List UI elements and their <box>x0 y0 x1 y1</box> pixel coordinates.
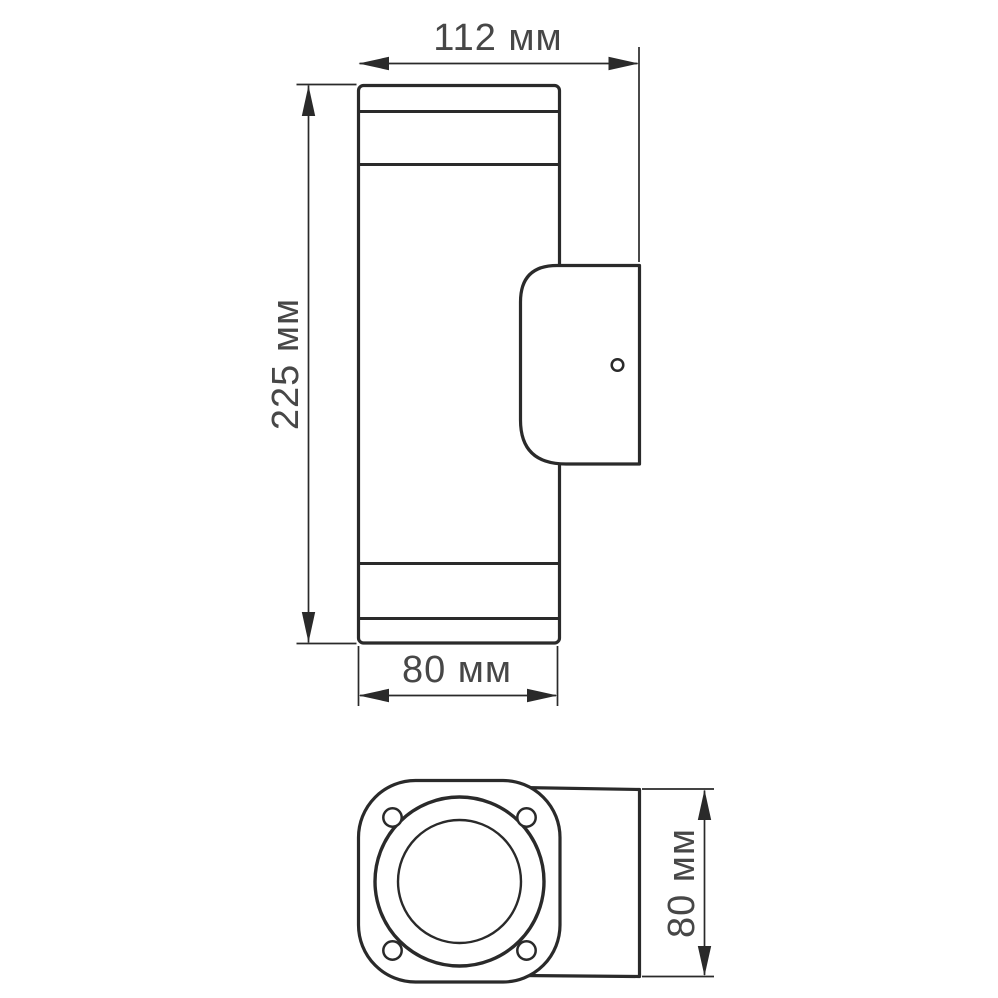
technical-drawing-canvas: 112 мм 225 мм <box>0 0 998 998</box>
dimension-body-width: 80 мм <box>359 646 558 706</box>
arrow-up-icon <box>302 86 315 117</box>
arrow-down-icon <box>698 946 711 976</box>
bottom-view: 80 мм <box>359 781 715 983</box>
dimension-mount-width: 80 мм <box>642 789 714 977</box>
screw-hole-bottom-right <box>517 941 535 959</box>
dimension-label-depth: 112 мм <box>433 17 562 59</box>
dimension-label-body-width: 80 мм <box>402 649 512 691</box>
dimension-label-height: 225 мм <box>265 298 307 430</box>
arrow-left-icon <box>359 689 390 702</box>
arrow-down-icon <box>302 612 315 643</box>
arrow-right-icon <box>527 689 558 702</box>
arrow-right-icon <box>609 57 640 70</box>
screw-hole-top-right <box>517 808 535 826</box>
arrow-up-icon <box>698 790 711 821</box>
screw-hole-bottom-left <box>383 941 401 959</box>
dimension-height: 225 мм <box>265 85 357 644</box>
side-view: 112 мм 225 мм <box>265 17 640 706</box>
screw-hole-top-left <box>383 808 401 826</box>
dimension-label-mount-width: 80 мм <box>661 828 703 938</box>
drawing-svg: 112 мм 225 мм <box>0 0 998 998</box>
bracket-screw-hole <box>612 359 624 371</box>
arrow-left-icon <box>359 57 390 70</box>
